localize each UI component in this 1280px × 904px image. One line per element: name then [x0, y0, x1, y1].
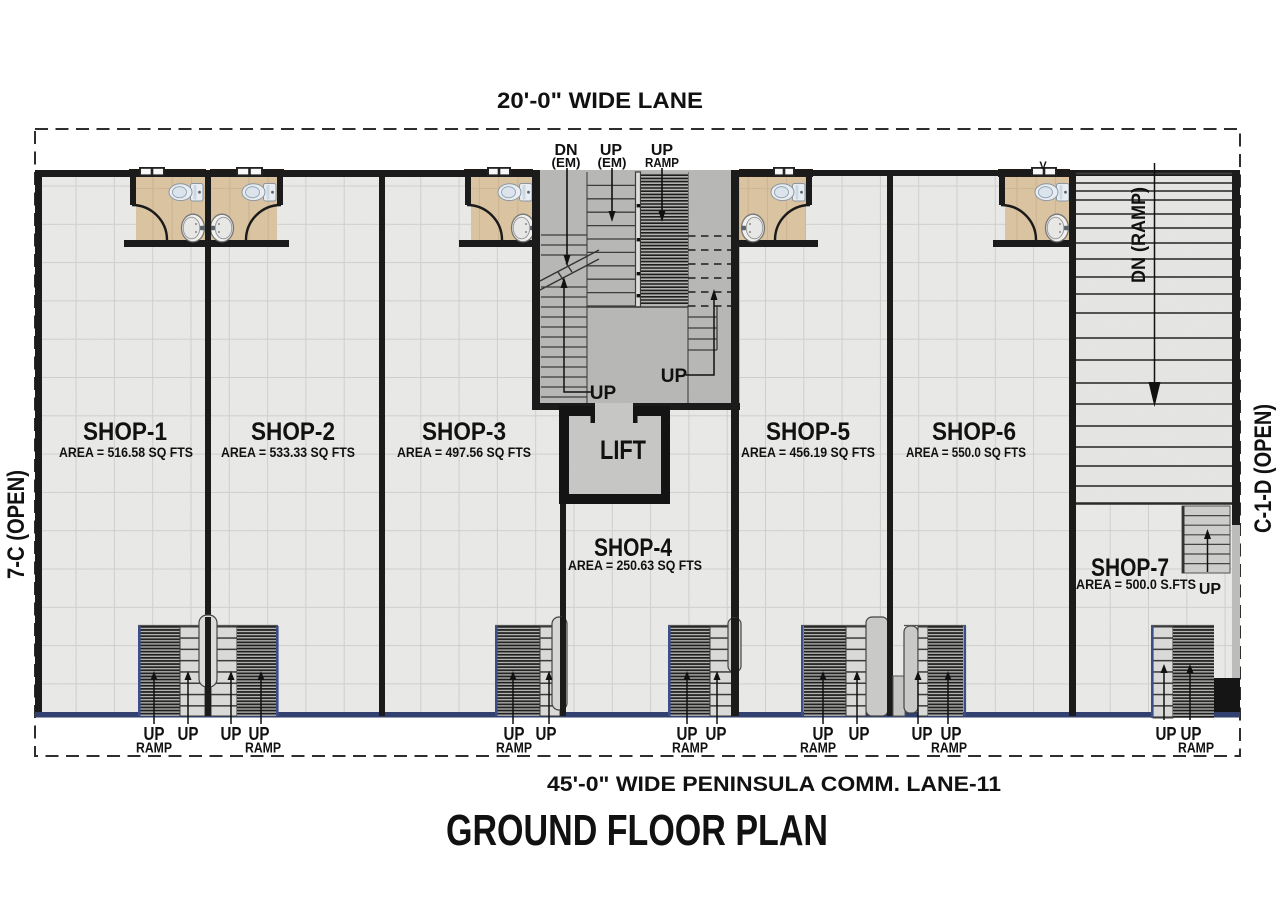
svg-text:20'-0" WIDE LANE: 20'-0" WIDE LANE: [497, 88, 703, 113]
svg-text:RAMP: RAMP: [1178, 740, 1214, 757]
svg-text:GROUND FLOOR PLAN: GROUND FLOOR PLAN: [446, 806, 828, 855]
svg-text:UP: UP: [661, 366, 688, 387]
svg-text:RAMP: RAMP: [136, 740, 172, 757]
svg-text:AREA = 250.63 SQ FTS: AREA = 250.63 SQ FTS: [568, 558, 702, 573]
svg-text:RAMP: RAMP: [672, 740, 708, 757]
svg-text:AREA = 497.56 SQ FTS: AREA = 497.56 SQ FTS: [397, 445, 531, 460]
svg-text:45'-0" WIDE PENINSULA COMM.: 45'-0" WIDE PENINSULA COMM. LANE-11: [547, 772, 1001, 796]
svg-text:SHOP-5: SHOP-5: [766, 418, 850, 446]
svg-text:UP: UP: [1199, 581, 1222, 598]
svg-text:RAMP: RAMP: [800, 740, 836, 757]
svg-text:SHOP-3: SHOP-3: [422, 418, 506, 446]
svg-text:C-1-D (OPEN): C-1-D (OPEN): [1250, 404, 1277, 533]
svg-text:UP: UP: [536, 723, 557, 744]
svg-text:DN (RAMP): DN (RAMP): [1128, 187, 1150, 283]
svg-text:AREA = 550.0 SQ FTS: AREA = 550.0 SQ FTS: [906, 445, 1026, 460]
svg-text:UP: UP: [1156, 723, 1177, 744]
svg-text:UP: UP: [706, 723, 727, 744]
svg-text:SHOP-6: SHOP-6: [932, 418, 1016, 446]
svg-text:UP: UP: [849, 723, 870, 744]
svg-text:AREA = 456.19 SQ FTS: AREA = 456.19 SQ FTS: [741, 445, 875, 460]
svg-text:RAMP: RAMP: [931, 740, 967, 757]
svg-text:SHOP-2: SHOP-2: [251, 418, 335, 446]
svg-text:AREA = 533.33 SQ FTS: AREA = 533.33 SQ FTS: [221, 445, 355, 460]
svg-text:(EM): (EM): [598, 155, 627, 170]
svg-text:RAMP: RAMP: [245, 740, 281, 757]
svg-text:UP: UP: [590, 383, 617, 404]
svg-text:LIFT: LIFT: [600, 435, 646, 465]
svg-text:7-C (OPEN): 7-C (OPEN): [3, 470, 30, 579]
svg-text:RAMP: RAMP: [496, 740, 532, 757]
svg-text:UP: UP: [221, 723, 242, 744]
svg-text:AREA = 500.0 S.FTS: AREA = 500.0 S.FTS: [1076, 577, 1196, 592]
svg-text:V: V: [1039, 160, 1047, 172]
svg-text:UP: UP: [912, 723, 933, 744]
svg-text:(EM): (EM): [552, 155, 581, 170]
svg-text:AREA = 516.58 SQ FTS: AREA = 516.58 SQ FTS: [59, 445, 193, 460]
svg-text:UP: UP: [178, 723, 199, 744]
svg-text:RAMP: RAMP: [645, 155, 679, 170]
svg-text:SHOP-1: SHOP-1: [83, 418, 167, 446]
